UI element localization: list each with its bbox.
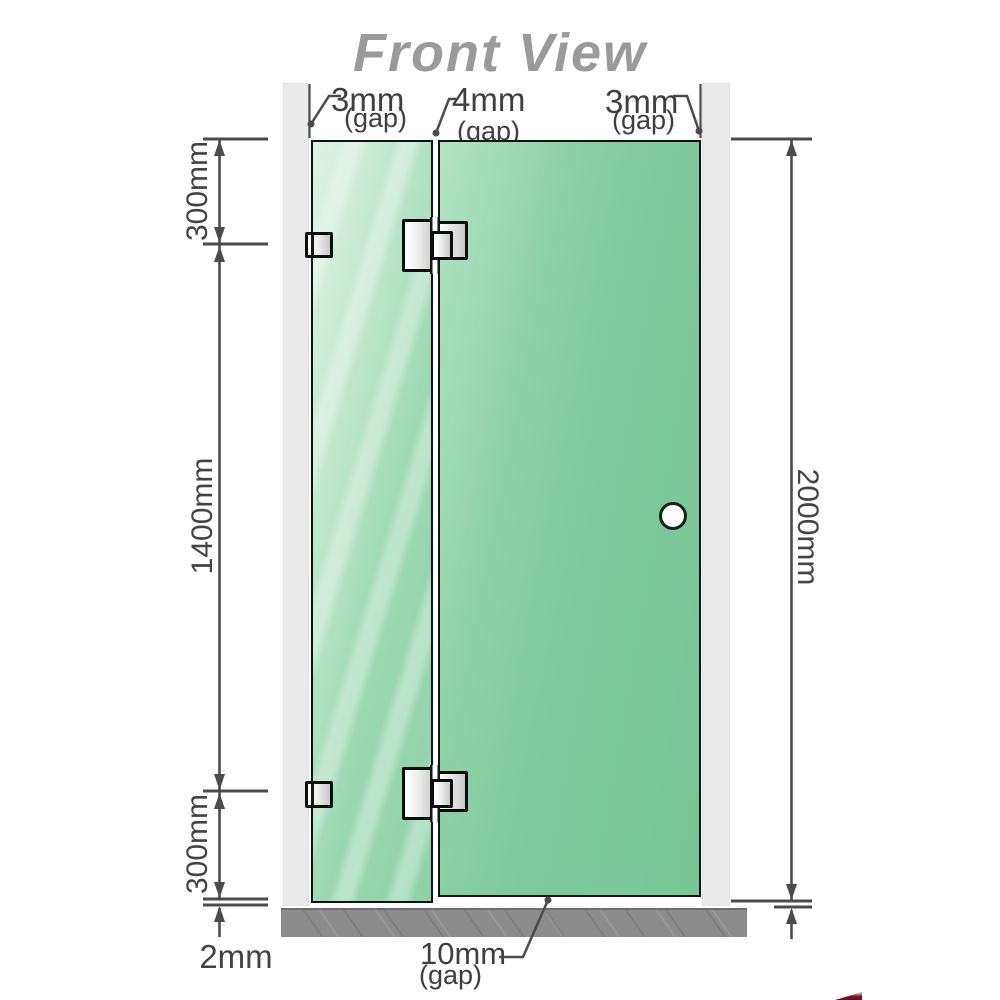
front-view-diagram: Front View 3mm (gap) 4mm (gap) 3mm (gap)… [0,0,1000,1000]
door-knob [659,502,687,530]
dimension-bottom-segment-label: 300mm [183,794,213,894]
gap-bottom-unit: (gap) [419,962,482,989]
hinge-top-pivot [431,231,453,260]
wall-gap-line-bottom [308,784,314,805]
dimension-top-segment-label: 300mm [183,141,213,241]
wall-gap-line-top [308,235,314,255]
dimension-floor-gap-label: 2mm [199,940,272,973]
gap-middle-label: 4mm [452,83,525,116]
page-title: Front View [0,22,1000,84]
gap-left-unit: (gap) [344,105,407,132]
dimension-middle-segment-label: 1400mm [188,458,218,575]
dimension-total-height-label: 2000mm [792,469,822,586]
right-wall [702,83,730,906]
gap-right-unit: (gap) [612,107,675,134]
logo-fragment [835,992,862,1000]
floor-base [281,908,747,937]
hinge-bottom-pivot [431,779,453,808]
